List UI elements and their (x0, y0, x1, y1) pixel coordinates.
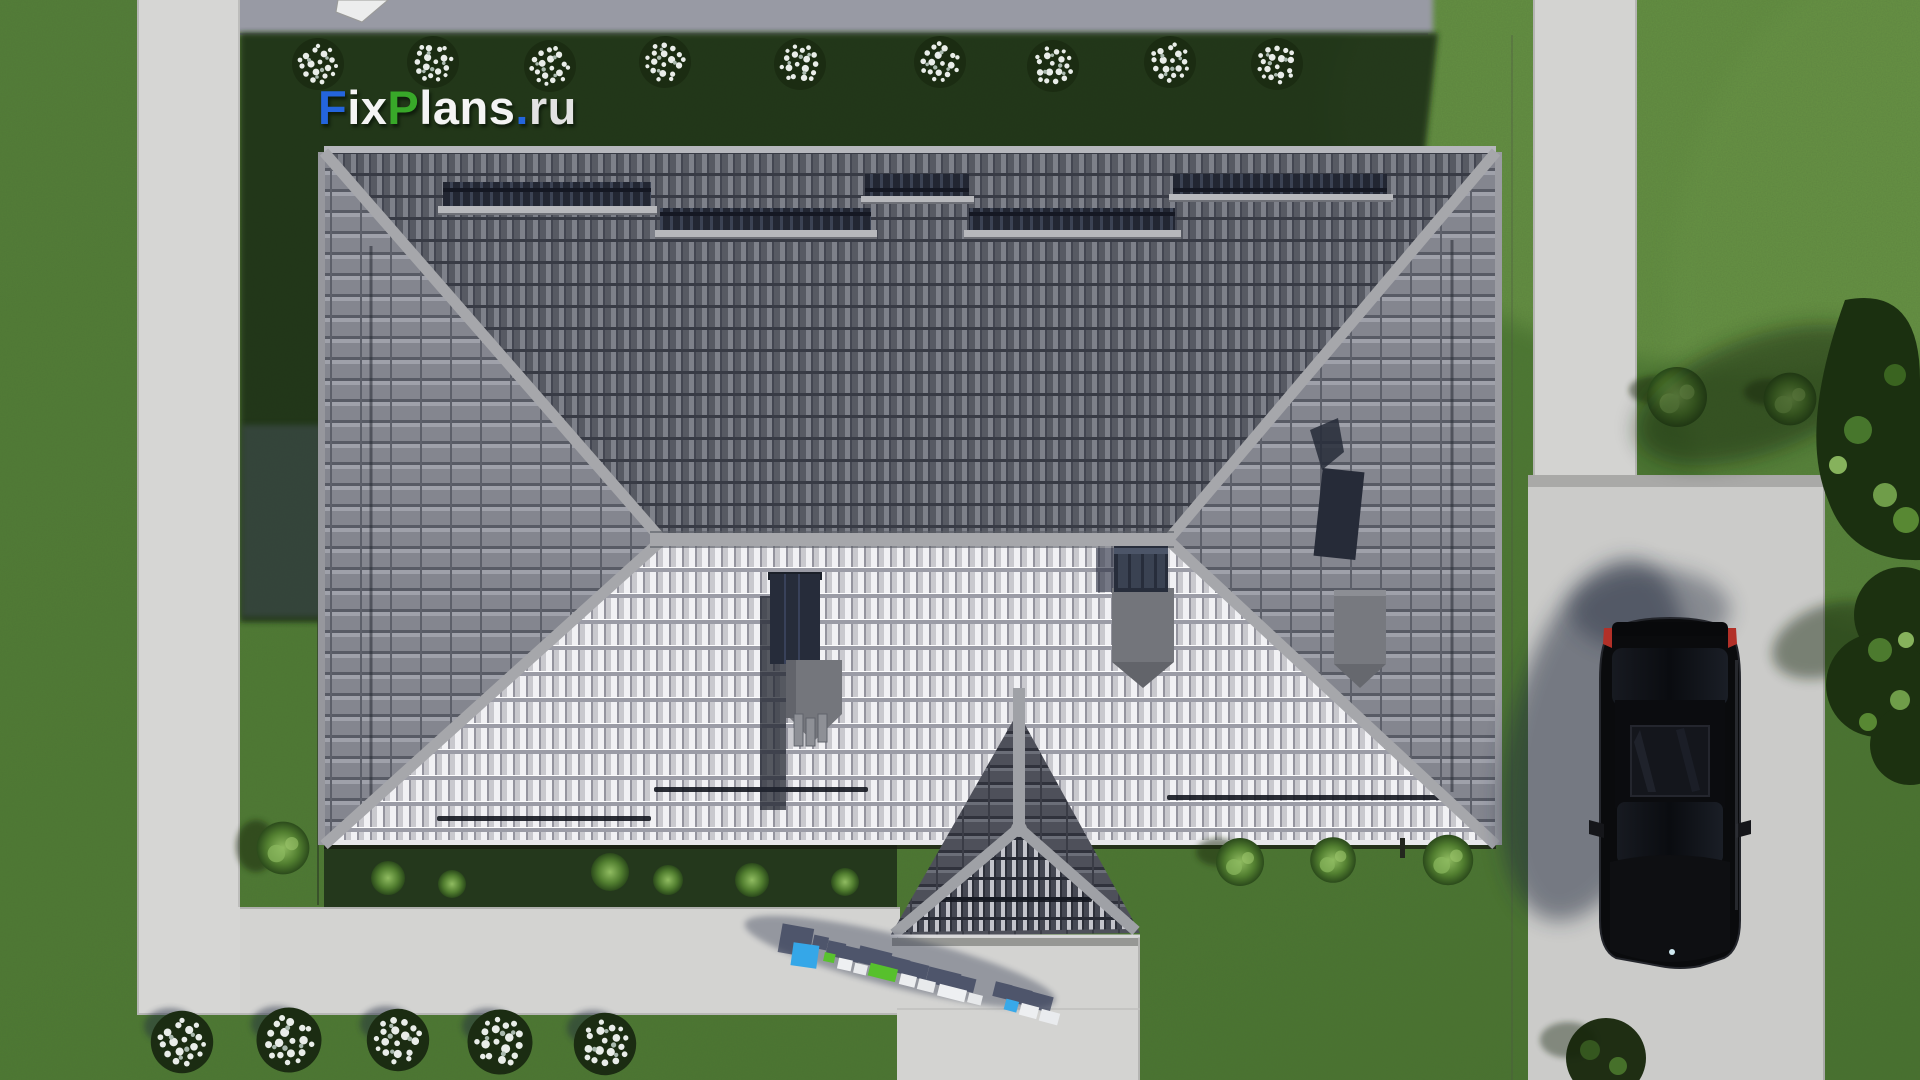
top-road (233, 0, 1433, 35)
chimney-flashing (1334, 590, 1386, 664)
snow-rail-shadow (438, 213, 657, 215)
logo-segment-f: F (318, 81, 347, 134)
path-edge (238, 0, 240, 907)
ridge-edge (650, 531, 1174, 533)
blue-shadow-patch (242, 425, 322, 617)
leaf-dab (1829, 456, 1847, 474)
chimney-flashing (1112, 588, 1174, 662)
chimney-rib (784, 574, 786, 664)
car-rear-window (1612, 648, 1728, 706)
roof-window (969, 208, 1175, 230)
aerial-house-render: FixPlans.ru (0, 0, 1920, 1080)
walkway-edge (1138, 935, 1140, 1080)
green-bush (1216, 838, 1264, 886)
porch-cap-joint (1011, 821, 1027, 837)
flue-caps (1114, 548, 1168, 554)
flue (1157, 550, 1165, 588)
roof-window (1173, 174, 1387, 194)
car-hood (1610, 855, 1730, 962)
logo-segment-dot: . (515, 81, 529, 134)
bed-bush (831, 868, 859, 896)
vent-pipe (806, 718, 815, 746)
bed-bush (735, 863, 769, 897)
leaf-dab (1868, 638, 1892, 662)
ridge-cap (650, 533, 1174, 546)
bed-bush (371, 861, 405, 895)
west-fascia (318, 152, 325, 845)
logo-segment-ix: ix (347, 81, 387, 134)
path-edge (137, 0, 139, 1015)
chimney-shadow (1096, 548, 1114, 592)
snow-rail-shadow (655, 237, 877, 239)
walkway-edge (137, 1013, 900, 1015)
driveway-top-border (1528, 475, 1825, 487)
vent-pipe (818, 714, 827, 742)
snow-guard-bar (1167, 795, 1446, 800)
drain-post (1400, 838, 1405, 858)
right-path-narrow (1533, 0, 1637, 478)
chimney-rib (798, 574, 800, 664)
flue (1118, 550, 1128, 588)
north-fascia (324, 146, 1496, 153)
scene-canvas (0, 0, 1920, 1080)
bed-bush (591, 853, 629, 891)
green-bush (1310, 837, 1356, 883)
leaf-dab (1873, 483, 1897, 507)
roof-window (443, 182, 651, 206)
logo-segment-p: P (387, 81, 419, 134)
leaf-dab (1884, 364, 1906, 386)
driveway-edge (1823, 475, 1825, 1080)
green-bush (1423, 835, 1473, 885)
vent-pipe (794, 714, 803, 746)
bed-bush (653, 865, 683, 895)
east-fascia (1495, 152, 1502, 845)
brand-logo-watermark: FixPlans.ru (318, 84, 577, 131)
leaf-dab (1890, 690, 1910, 710)
chimney-flashing-shade (786, 660, 796, 718)
logo-segment-ru: ru (529, 81, 577, 134)
snow-rail-shadow (1169, 200, 1393, 202)
chimney-top (770, 574, 820, 664)
leaf-dab (1580, 1040, 1600, 1060)
roof-window (865, 174, 969, 196)
leaf-dab (1844, 416, 1872, 444)
green-bush (257, 822, 310, 875)
snow-rail-shadow (861, 202, 974, 204)
logo-segment-lans: lans (419, 81, 515, 134)
car-rear-deck (1612, 622, 1728, 636)
leaf-dab (1859, 713, 1877, 731)
ridge-edge (650, 546, 1174, 548)
leaf-dab (1893, 507, 1919, 533)
porch-ridge-cap (1013, 688, 1025, 830)
leaf-dab (1609, 1057, 1627, 1075)
path-edge (1635, 0, 1637, 478)
left-path-vertical (137, 0, 240, 1015)
snow-guard-bar (437, 816, 651, 821)
porch-snow-guard (936, 897, 1092, 902)
flower-bush (151, 1011, 213, 1073)
snow-rail-shadow (964, 237, 1181, 239)
roof-window (660, 208, 871, 230)
flue (1144, 550, 1154, 588)
car-windshield (1617, 802, 1723, 864)
walkway-edge (240, 907, 900, 909)
chimney-flashing-edge (1334, 590, 1386, 596)
walkway-step-line (897, 1008, 1140, 1010)
car-front-emblem (1669, 949, 1675, 955)
flue (1131, 550, 1141, 588)
road-strip (233, 0, 1433, 34)
car-side-highlight (1735, 660, 1738, 910)
bed-bush (438, 870, 466, 898)
leaf-dab (1898, 632, 1914, 648)
path-edge (1533, 0, 1535, 478)
